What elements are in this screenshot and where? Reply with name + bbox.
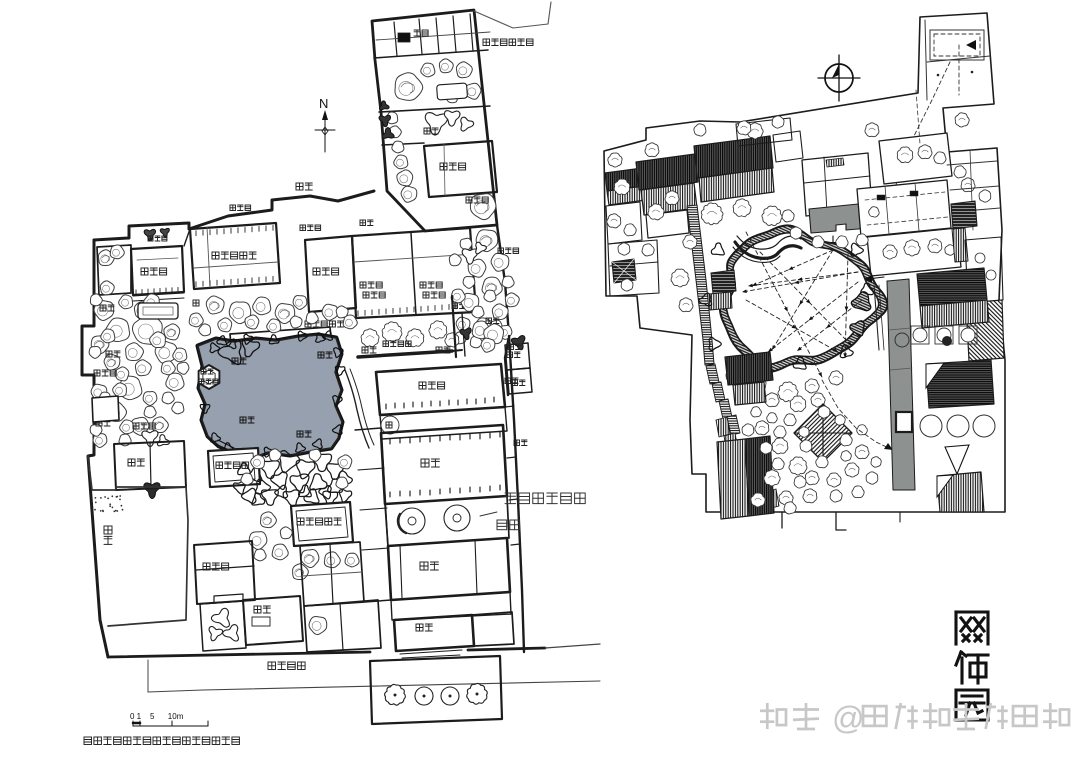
svg-text:N: N [319,96,328,111]
svg-text:@: @ [832,700,864,736]
svg-text:0 1 5 10m: 0 1 5 10m [130,712,184,721]
